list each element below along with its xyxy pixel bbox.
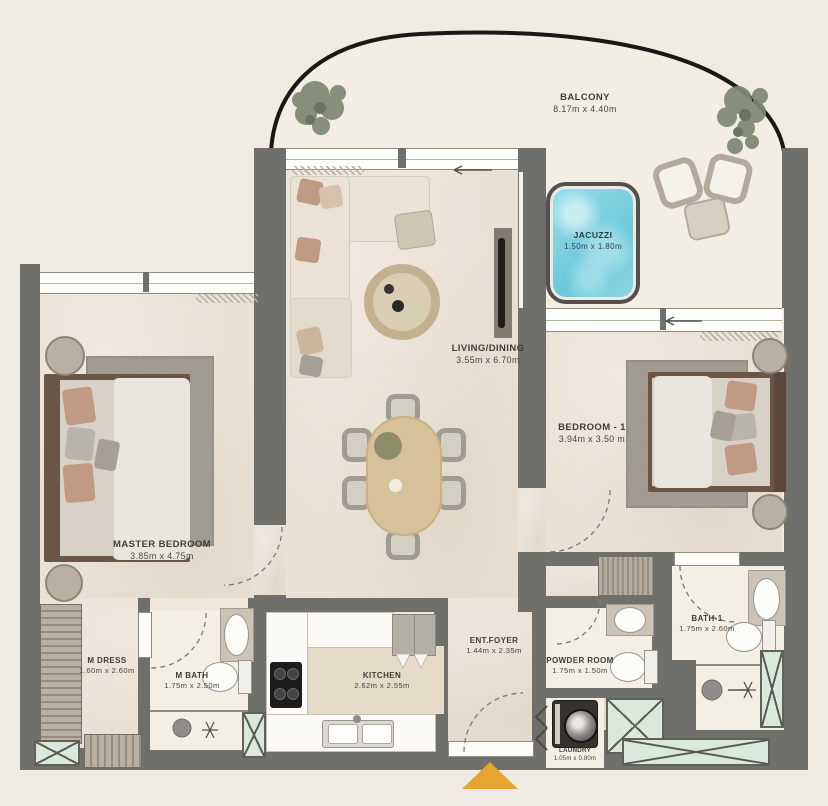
plant: [292, 81, 346, 135]
room-dims: 1.75m x 2.50m: [112, 681, 272, 691]
burner: [287, 668, 299, 680]
cup: [384, 284, 394, 294]
room-label-powder-room: POWDER ROOM 1.75m x 1.50m: [500, 656, 660, 676]
floor-plan: BALCONY 8.17m x 4.40m JACUZZI 1.50m x 1.…: [0, 0, 828, 806]
door-opening: [674, 552, 740, 566]
wall: [546, 552, 786, 566]
nightstand: [752, 494, 788, 530]
pillow: [64, 427, 95, 462]
washer-panel: [555, 704, 560, 744]
dining-table: [366, 416, 442, 536]
pillow: [298, 354, 323, 378]
room-name: BALCONY: [505, 92, 665, 104]
wall: [20, 264, 40, 770]
side-table: [394, 210, 437, 251]
room-label-bedroom-1: BEDROOM - 1 3.94m x 3.50 m: [512, 422, 672, 445]
room-name: BATH-1: [627, 614, 787, 624]
pillow: [62, 386, 97, 426]
room-label-jacuzzi: JACUZZI 1.50m x 1.80m: [513, 229, 673, 252]
room-name: POWDER ROOM: [500, 656, 660, 666]
room-name: M BATH: [112, 671, 272, 681]
room-dims: 1.50m x 1.80m: [513, 241, 673, 252]
plate: [388, 478, 403, 493]
wardrobe: [84, 734, 142, 768]
wall: [784, 308, 808, 738]
room-dims: 2.62m x 2.55m: [302, 681, 462, 691]
room-name: LIVING/DINING: [408, 343, 568, 355]
washer-door: [564, 709, 598, 743]
room-dims: 3.55m x 6.70m: [408, 355, 568, 366]
door-opening-floor: [254, 525, 286, 595]
room-dims: 3.85m x 4.75m: [82, 551, 242, 562]
pillow: [318, 184, 343, 209]
sink-bowl: [328, 724, 358, 744]
nightstand: [45, 336, 85, 376]
room-dims: 8.17m x 4.40m: [505, 104, 665, 115]
room-label-bath-1: BATH-1 1.75m x 2.60m: [627, 614, 787, 634]
tv: [498, 238, 505, 328]
nightstand: [45, 564, 83, 602]
room-label-ent-foyer: ENT.FOYER 1.44m x 2.35m: [414, 636, 574, 656]
washbasin: [224, 614, 249, 656]
closet: [598, 556, 654, 596]
shaft: [34, 740, 80, 766]
sink-bowl: [362, 724, 392, 744]
room-label-m-bath: M BATH 1.75m x 2.50m: [112, 671, 272, 691]
table-plant: [374, 432, 402, 460]
door-opening: [138, 612, 152, 658]
pillow: [724, 380, 758, 412]
headboard: [774, 372, 786, 492]
room-name: LAUNDRY: [535, 747, 615, 755]
faucet: [353, 715, 361, 723]
window-mullion: [398, 148, 406, 168]
burner: [287, 688, 299, 700]
washing-machine: [552, 700, 598, 748]
nightstand: [752, 338, 788, 374]
window-mullion: [660, 308, 666, 330]
wall: [254, 148, 286, 525]
room-dims: 3.94m x 3.50 m: [512, 434, 672, 445]
door-opening-floor: [518, 488, 546, 552]
curtain-mark: [292, 166, 364, 175]
room-label-kitchen: KITCHEN 2.62m x 2.55m: [302, 671, 462, 691]
room-label-balcony: BALCONY 8.17m x 4.40m: [505, 92, 665, 115]
room-name: MASTER BEDROOM: [82, 539, 242, 551]
room-name: KITCHEN: [302, 671, 462, 681]
room-name: JACUZZI: [513, 229, 673, 241]
wall: [672, 660, 696, 730]
room-dims: 1.75m x 1.50m: [500, 666, 660, 676]
room-label-laundry: LAUNDRY 1.05m x 0.80m: [535, 747, 615, 763]
room-label-living-dining: LIVING/DINING 3.55m x 6.70m: [408, 343, 568, 366]
room-name: M DRESS: [27, 656, 187, 666]
burner: [274, 668, 286, 680]
wall: [254, 598, 448, 612]
cup: [392, 300, 404, 312]
shaft: [760, 650, 784, 728]
duvet: [112, 378, 190, 560]
curtain-mark: [196, 294, 258, 303]
shower-divider: [150, 710, 248, 712]
pillow: [62, 463, 95, 503]
room-dims: 1.05m x 0.80m: [535, 755, 615, 763]
wall: [544, 688, 666, 698]
shaft: [622, 738, 770, 766]
entry-door: [448, 741, 534, 757]
shaft: [242, 712, 266, 758]
room-dims: 1.75m x 2.60m: [627, 624, 787, 634]
room-name: ENT.FOYER: [414, 636, 574, 646]
room-name: BEDROOM - 1: [512, 422, 672, 434]
burner: [274, 688, 286, 700]
pillow: [294, 236, 321, 263]
room-dims: 1.44m x 2.35m: [414, 646, 574, 656]
wall: [782, 148, 808, 308]
window-mullion: [143, 272, 149, 292]
pillow: [296, 326, 325, 356]
patio-table: [683, 196, 732, 242]
pillow: [724, 442, 758, 476]
cooktop: [270, 662, 302, 708]
plant: [717, 86, 768, 154]
room-label-master-bedroom: MASTER BEDROOM 3.85m x 4.75m: [82, 539, 242, 562]
